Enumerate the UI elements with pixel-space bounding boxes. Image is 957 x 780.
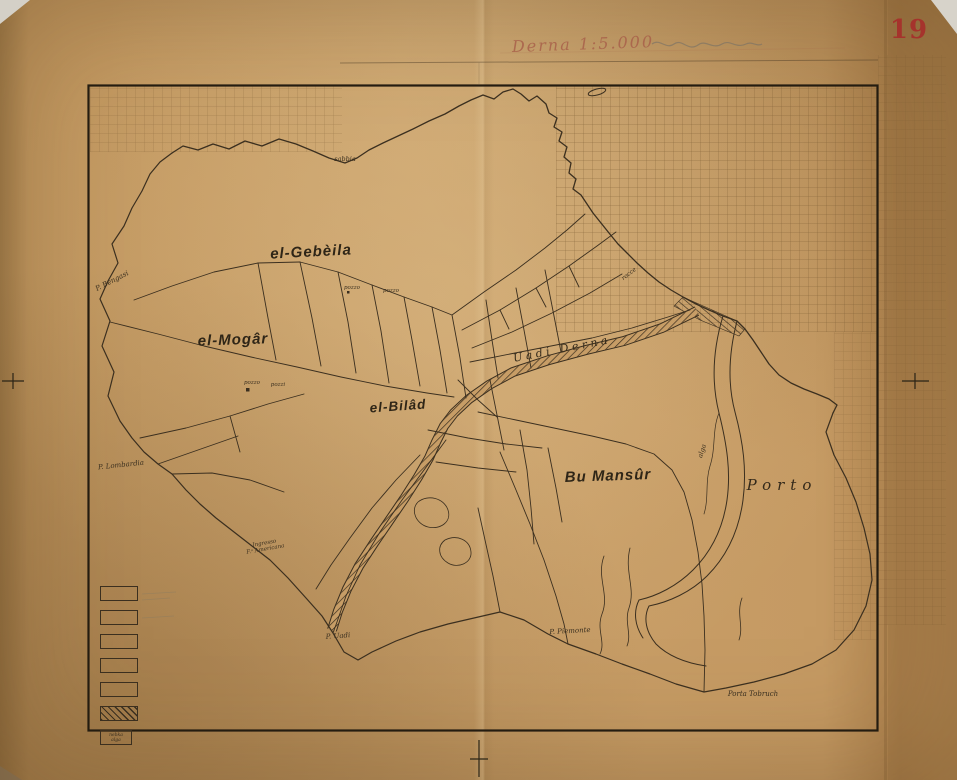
legend-note-box: nebka alga — [100, 730, 132, 745]
legend-note-line2: alga — [111, 738, 121, 743]
legend-swatch-hatched — [100, 706, 138, 721]
legend-swatch — [100, 658, 138, 673]
harbour-outline — [636, 316, 745, 666]
sheet-number-stamp: 19 — [890, 15, 928, 45]
gate-label-tobruch: Porta Tobruch — [728, 690, 778, 698]
well-label: pozzo — [383, 288, 399, 294]
scanned-map-sheet: Derna 1:5.000 19 el-Gebèila el-Mogâr el-… — [0, 0, 957, 780]
legend-swatch — [100, 586, 138, 601]
legend-swatch — [100, 634, 138, 649]
map-linework — [0, 0, 957, 780]
margin-lines — [340, 48, 878, 84]
well-label: pozzi — [271, 382, 285, 388]
legend-swatch — [100, 682, 138, 697]
district-label-mogar: el-Mogâr — [197, 330, 268, 349]
offshore-islet — [588, 87, 607, 97]
registration-marks — [2, 373, 929, 777]
city-boundary — [100, 153, 872, 692]
porto-label: Porto — [747, 476, 818, 494]
terrain-label-sabbia: sabbia — [334, 155, 356, 163]
well-label: pozzo — [344, 285, 360, 291]
roads — [110, 214, 705, 692]
gate-label-uadi: P. Uadi — [325, 631, 350, 641]
pencil-scribble — [652, 42, 762, 47]
legend-swatch — [100, 610, 138, 625]
map-frame — [89, 86, 878, 731]
district-label-bumansur: Bu Mansûr — [564, 466, 651, 486]
well-label: pozzo — [244, 380, 260, 386]
map-legend: nebka alga — [100, 586, 138, 745]
